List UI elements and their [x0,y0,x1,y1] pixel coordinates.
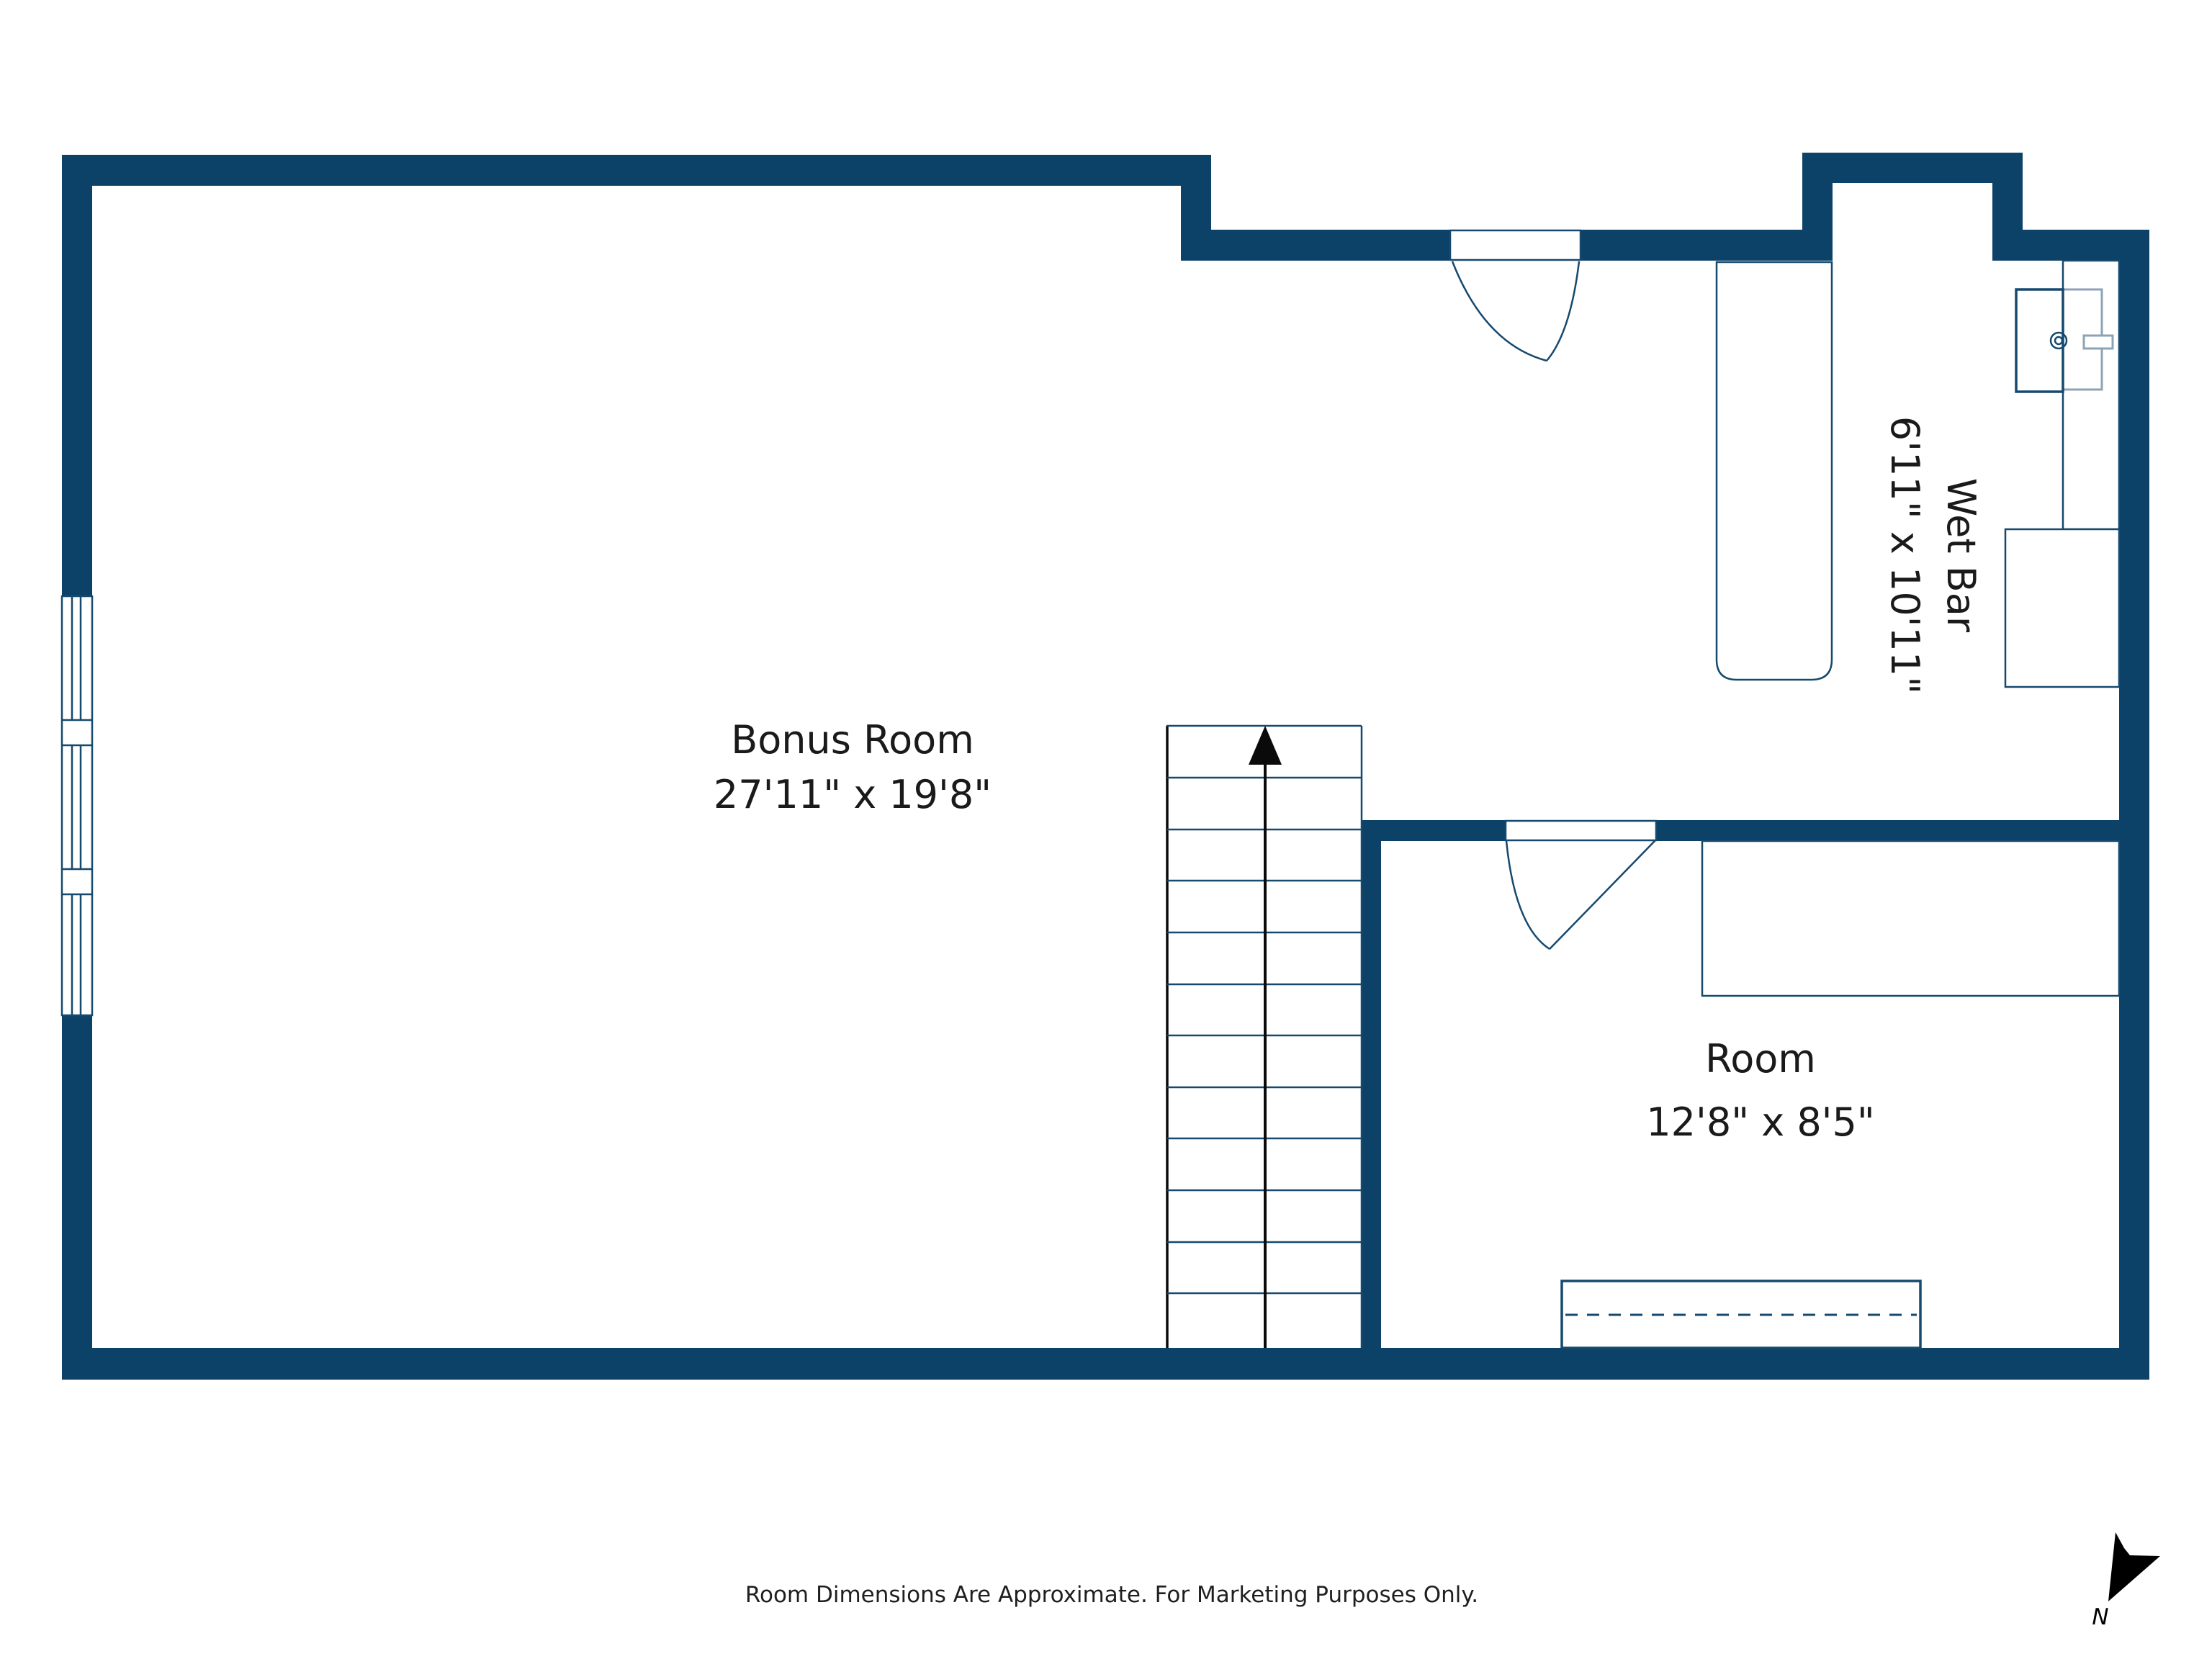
top-door [1450,230,1581,361]
room-door-opening [1506,821,1656,840]
floor-plan-drawing: Bonus Room 27'11" x 19'8" Wet Bar 6'11" … [0,0,2212,1659]
room-name-label: Room [1705,1036,1816,1082]
top-wall-right-of-door [1581,230,1802,261]
bottom-wall [62,1348,2149,1380]
top-wall-step [1181,155,1211,261]
north-letter: N [2092,1604,2108,1630]
wet-bar-lower-counter [2005,529,2119,687]
bar-counter [1717,262,1832,680]
interior-walls [1361,820,2119,1348]
floor-plan-page: Bonus Room 27'11" x 19'8" Wet Bar 6'11" … [0,0,2212,1659]
top-door-leaf [1547,261,1579,361]
bump-out-top-wall [1802,153,2023,183]
right-wall [2119,230,2149,1380]
faucet-icon [2084,336,2113,349]
room-inset-area [1702,841,2119,996]
wet-bar-dimensions-label: 6'11" x 10'11" [1882,416,1928,694]
room-top-wall-right [1656,820,2119,841]
window-triple-left-wall [62,596,92,1015]
bump-out-right-wall [1992,153,2023,261]
top-wall-mid-section [1211,230,1450,261]
window-frame [62,596,92,1015]
exterior-walls [62,153,2149,1380]
north-compass: N [2092,1532,2160,1630]
top-wall-left-section [62,155,1211,186]
north-arrow-icon [2108,1532,2160,1601]
bonus-room-name-label: Bonus Room [731,717,974,763]
room-fixtures [1562,841,2119,1348]
top-door-swing-arc [1452,261,1547,361]
stair-up-arrow-icon [1249,726,1282,765]
footer-disclaimer: Room Dimensions Are Approximate. For Mar… [745,1582,1478,1608]
room-door-swing-arc [1506,841,1550,949]
bonus-room-dimensions-label: 27'11" x 19'8" [714,772,992,817]
room-door-leaf [1550,840,1655,949]
room-top-wall-left [1361,820,1505,841]
stair-room-divider-wall [1361,820,1381,1348]
wet-bar-name-label: Wet Bar [1938,478,1984,633]
staircase [1166,726,1362,1348]
top-door-opening [1450,230,1581,260]
room-door [1506,821,1656,949]
room-dimensions-label: 12'8" x 8'5" [1646,1100,1874,1145]
